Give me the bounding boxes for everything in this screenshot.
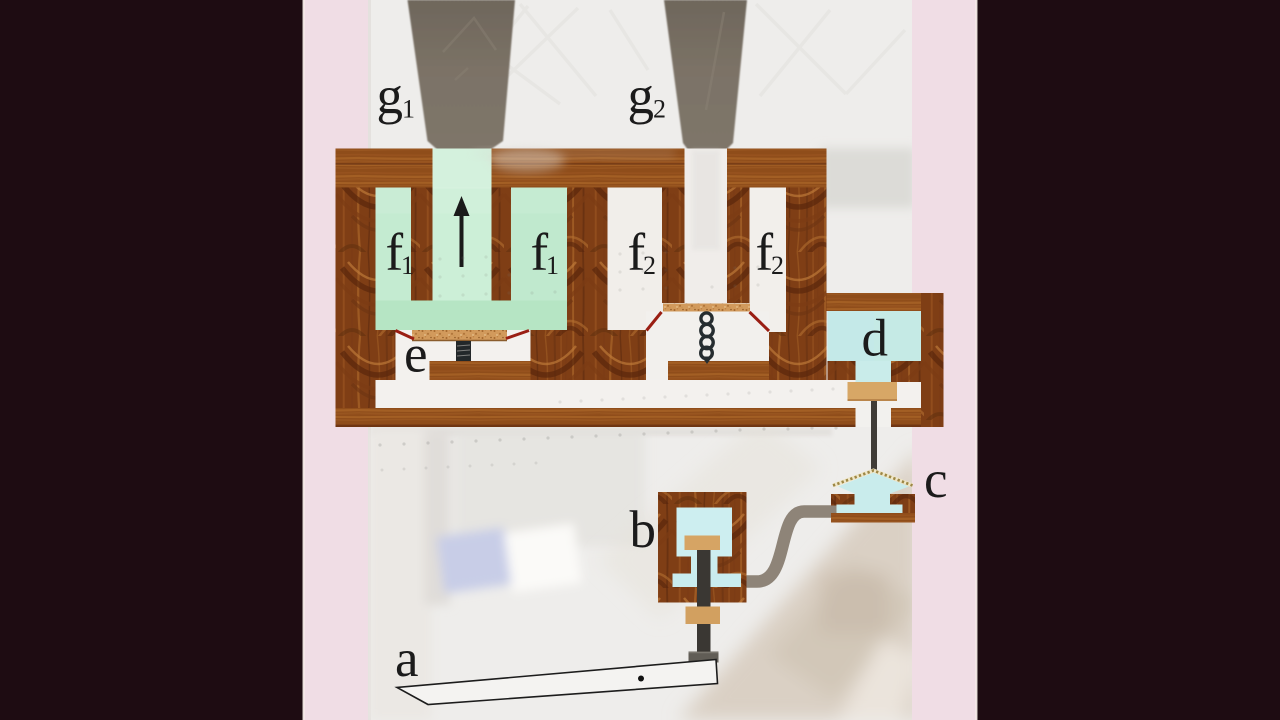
svg-text:c: c: [924, 451, 948, 509]
svg-text:a: a: [395, 630, 419, 688]
svg-text:e: e: [404, 326, 428, 384]
svg-text:d: d: [862, 310, 889, 368]
svg-text:1: 1: [401, 251, 414, 280]
svg-text:g: g: [628, 67, 655, 125]
svg-text:2: 2: [653, 95, 666, 124]
svg-text:1: 1: [546, 251, 559, 280]
svg-text:2: 2: [643, 251, 656, 280]
svg-text:b: b: [630, 501, 657, 559]
svg-text:1: 1: [402, 95, 415, 124]
svg-text:2: 2: [771, 251, 784, 280]
svg-text:g: g: [377, 67, 404, 125]
